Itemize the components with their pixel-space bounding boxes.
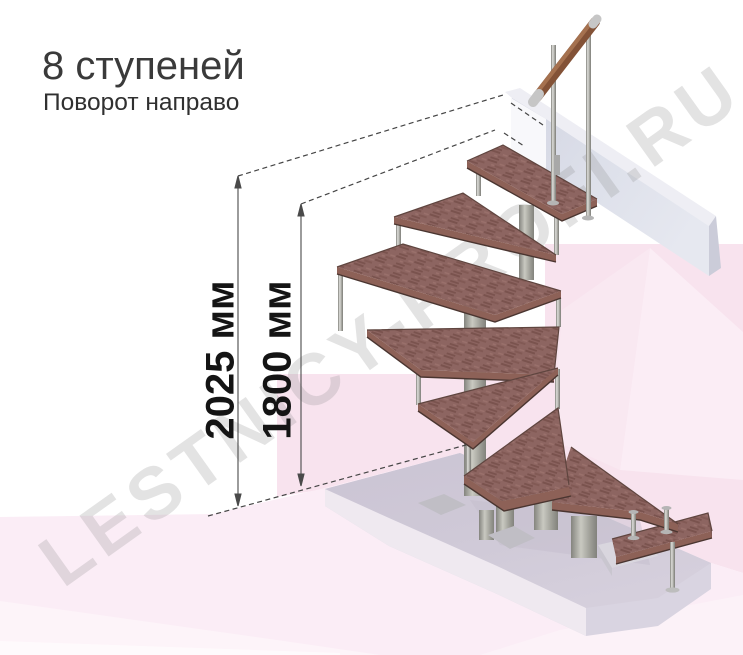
svg-text:2025 мм: 2025 мм [199,280,243,439]
svg-text:1800 мм: 1800 мм [256,280,300,439]
svg-text:8 ступеней: 8 ступеней [42,44,245,88]
svg-text:Поворот направо: Поворот направо [43,89,239,116]
